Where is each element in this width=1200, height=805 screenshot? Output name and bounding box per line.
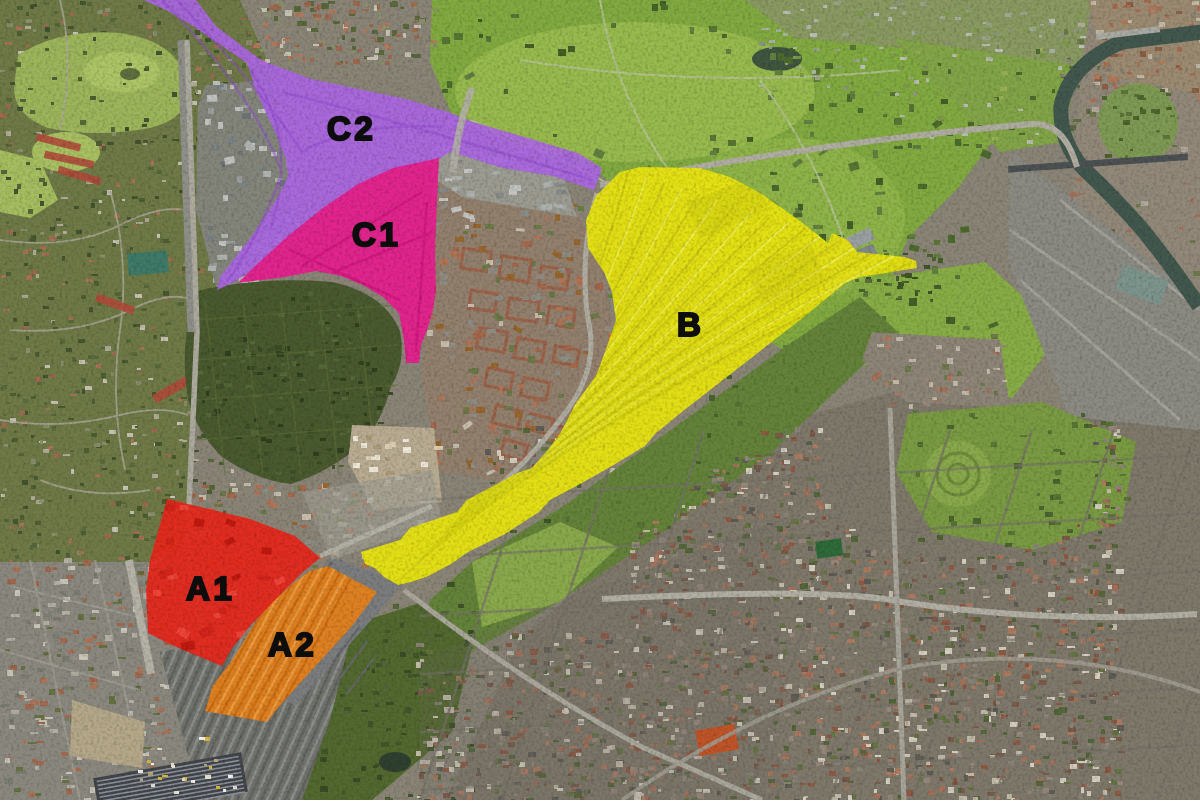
svg-text:C1: C1 [352, 216, 401, 253]
svg-text:A1: A1 [186, 570, 235, 607]
svg-text:C2: C2 [327, 110, 376, 147]
svg-text:B: B [677, 306, 704, 343]
svg-text:A2: A2 [268, 626, 317, 663]
